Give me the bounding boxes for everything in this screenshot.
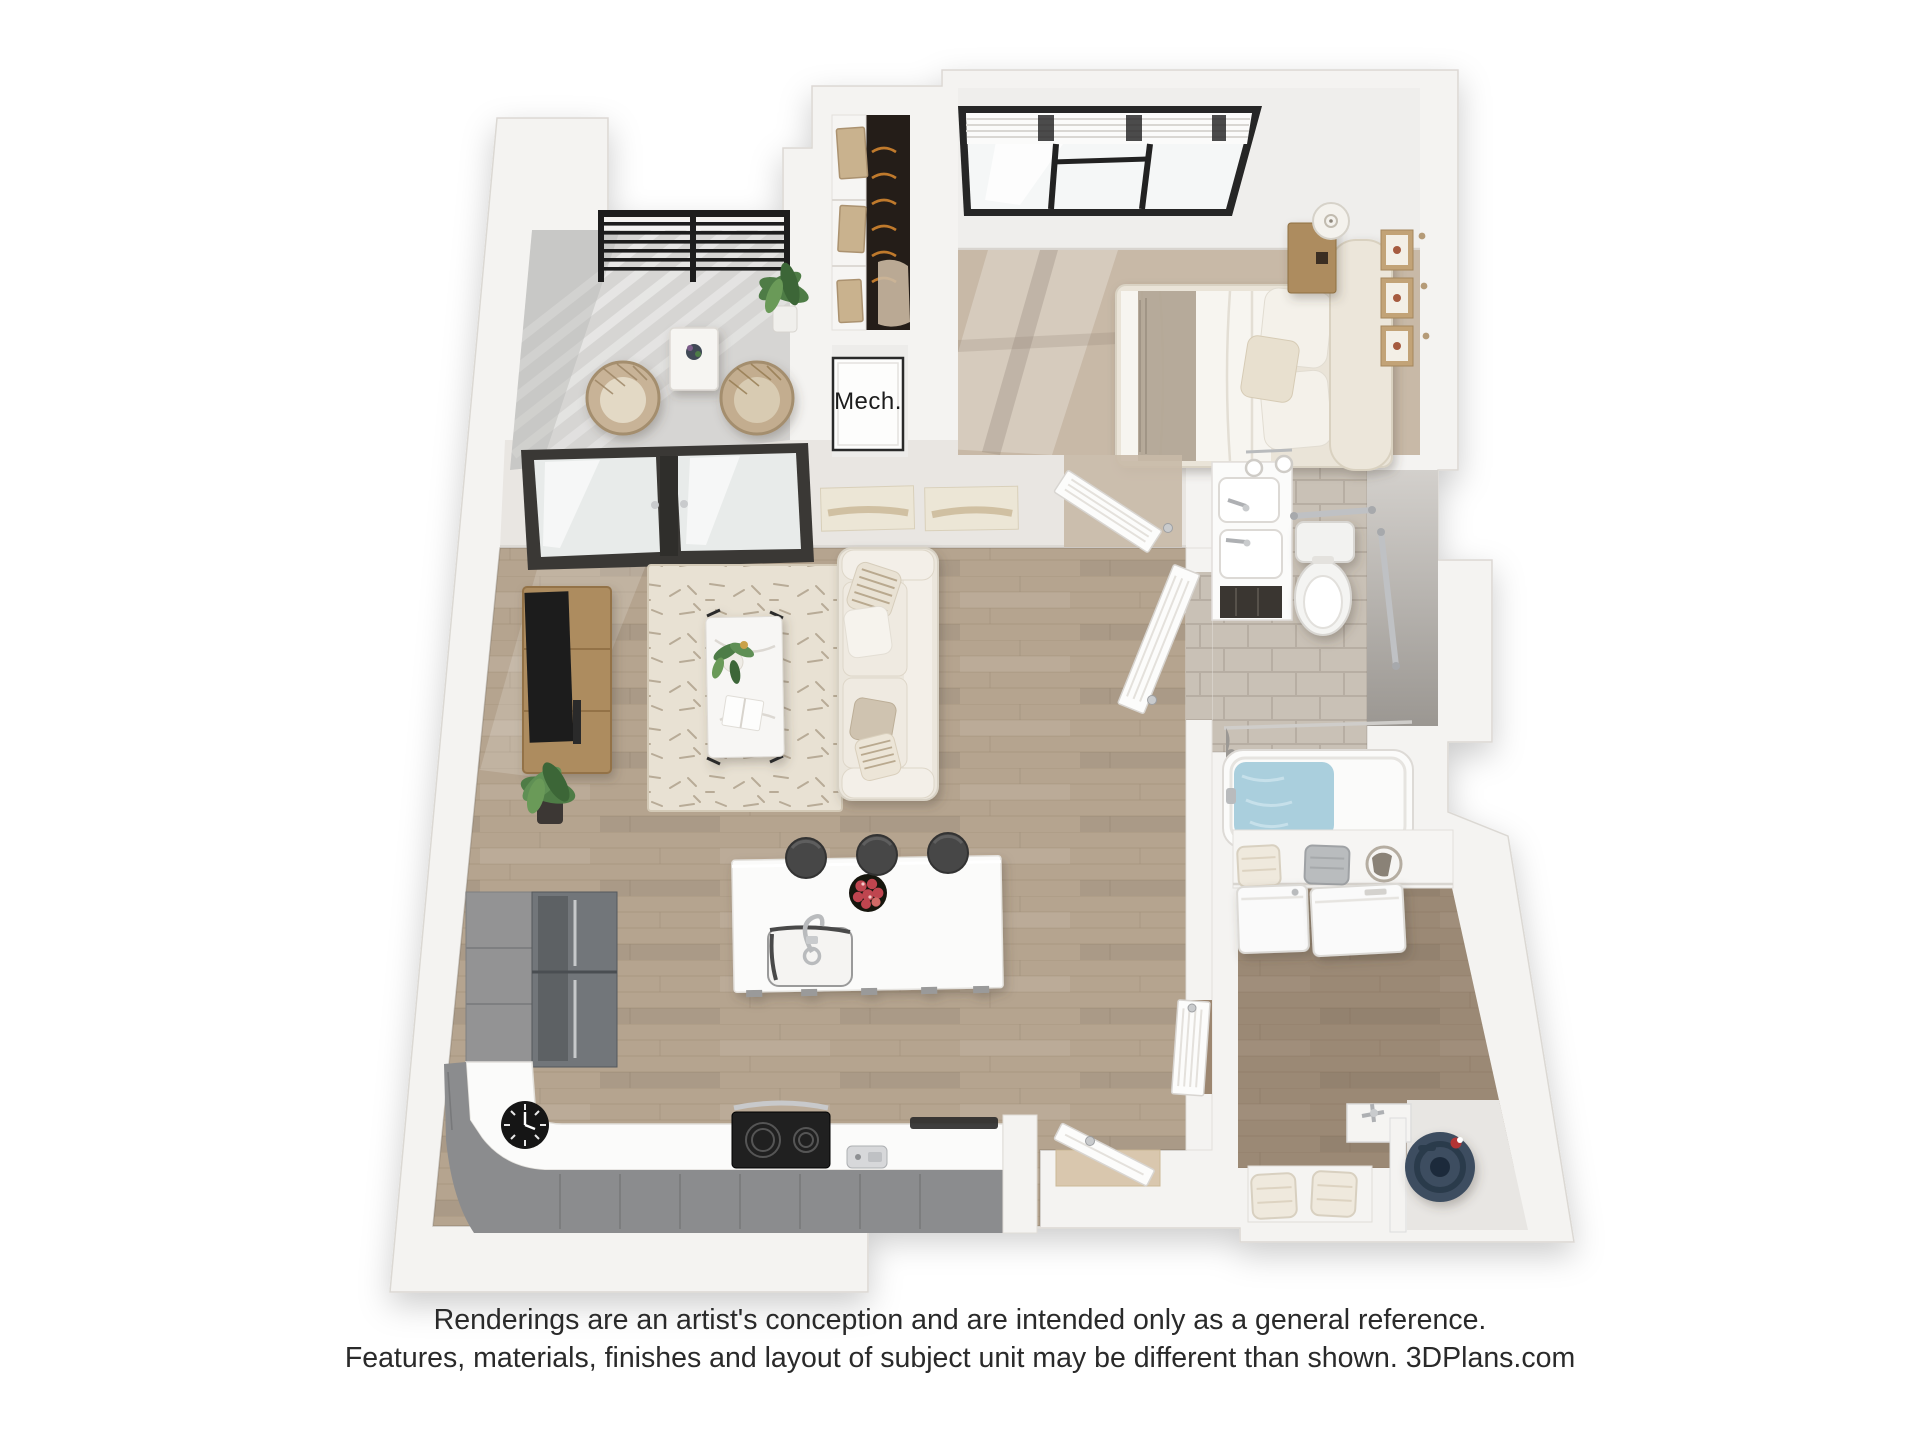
laundry-door <box>1172 1000 1212 1096</box>
closet <box>832 115 910 330</box>
french-door-handle <box>651 501 659 509</box>
tv-console <box>523 587 611 773</box>
washer <box>1237 885 1309 953</box>
disclaimer-line-2: Features, materials, finishes and layout… <box>0 1339 1920 1377</box>
balcony-table <box>670 328 718 390</box>
mech-room-label: Mech. <box>820 388 916 416</box>
stove-cooktop <box>732 1103 830 1168</box>
floor-plan-page: Mech. Renderings are an artist's concept… <box>0 0 1920 1440</box>
heater-partition-wall <box>1390 1118 1406 1232</box>
laundry-bottom-shelf <box>1248 1166 1372 1222</box>
sofa <box>838 548 938 800</box>
tv-screen <box>524 591 573 742</box>
floor-basket-2 <box>1311 1171 1357 1217</box>
bedroom-window <box>958 106 1262 216</box>
fruit-bowl <box>849 874 887 912</box>
floor-plan-rendering <box>0 0 1920 1440</box>
bedroom-door <box>1054 455 1182 553</box>
refrigerator <box>532 892 617 1067</box>
bar-stools <box>786 833 968 878</box>
dryer <box>1310 884 1405 957</box>
entry-wall-stub <box>1003 1115 1037 1233</box>
balcony-chair-left <box>587 362 659 434</box>
laundry-door-handle <box>1188 1004 1196 1012</box>
water-heater <box>1405 1132 1475 1202</box>
coffee-table <box>706 610 784 764</box>
window-blinds <box>966 113 1252 144</box>
french-doors <box>521 443 814 570</box>
coffee-table-book <box>722 695 764 731</box>
balcony-chair-right <box>721 362 793 434</box>
kitchen-island <box>732 856 1003 998</box>
tub-spout <box>1226 788 1236 804</box>
disclaimer: Renderings are an artist's conception an… <box>0 1301 1920 1377</box>
shelf-basket-gray <box>1304 845 1349 885</box>
toilet <box>1295 522 1354 635</box>
sofa-pillow-white <box>843 605 893 659</box>
bedside-lamp <box>1313 203 1349 239</box>
bathroom-shower-wall-face <box>1367 470 1438 726</box>
bedroom-door-handle <box>1164 524 1173 533</box>
bathroom-vanity <box>1212 450 1292 620</box>
bathroom-door-handle <box>1148 696 1157 705</box>
wall-clock <box>501 1101 549 1149</box>
closet-garment <box>878 260 910 327</box>
countertop-appliance <box>847 1146 887 1168</box>
bed-accent-pillow <box>1239 334 1300 403</box>
disclaimer-line-1: Renderings are an artist's conception an… <box>0 1301 1920 1339</box>
shelf-basket-cream <box>1237 845 1281 887</box>
front-door-handle <box>1086 1137 1095 1146</box>
vanity-cabinet-base <box>1220 586 1282 618</box>
kitchen-tall-cabinet <box>466 892 532 1062</box>
floor-basket-1 <box>1251 1173 1297 1219</box>
countertop-tray <box>910 1117 998 1129</box>
